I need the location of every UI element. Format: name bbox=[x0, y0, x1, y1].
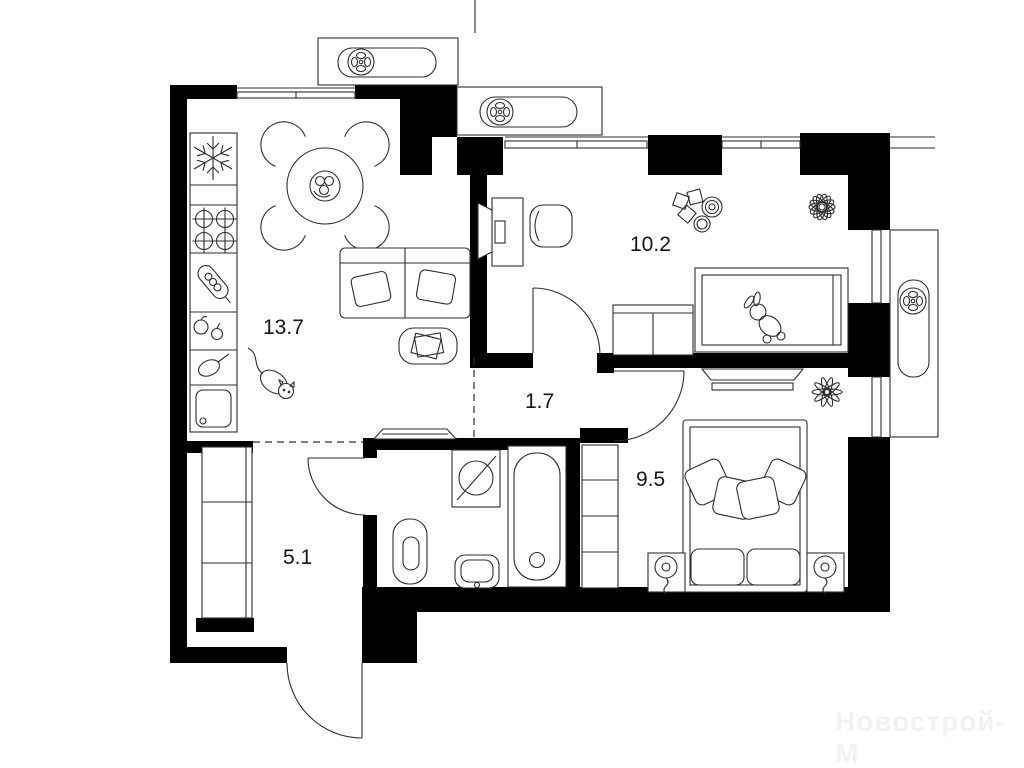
child-bedroom-window-2 bbox=[722, 141, 800, 148]
label-hallway: 1.7 bbox=[525, 390, 554, 413]
coffee-table bbox=[399, 328, 457, 364]
kitchen-sink-icon bbox=[196, 390, 231, 427]
label-entrance-hall: 5.1 bbox=[283, 546, 312, 569]
entrance-hall bbox=[202, 447, 252, 618]
kitchen-window bbox=[237, 88, 355, 98]
double-bed bbox=[683, 420, 808, 592]
bedroom bbox=[582, 369, 844, 594]
sofa bbox=[340, 248, 470, 318]
floor-plan-page: 13.7 10.2 1.7 9.5 5.1 Новострой-М bbox=[0, 0, 1024, 768]
child-bed bbox=[695, 268, 848, 352]
plant-icon bbox=[808, 193, 835, 220]
ac-basket-top-left bbox=[318, 38, 458, 85]
tv-living-room bbox=[374, 429, 456, 439]
washing-machine-icon bbox=[452, 450, 500, 507]
nightstand-left bbox=[648, 553, 685, 594]
child-bedroom-window-1 bbox=[505, 141, 647, 148]
tv-bedroom bbox=[702, 369, 803, 390]
toys-icon bbox=[673, 189, 722, 232]
plant-icon bbox=[812, 377, 842, 408]
dining-table bbox=[251, 112, 398, 259]
cat-icon bbox=[248, 348, 294, 399]
hall-wardrobe bbox=[202, 447, 252, 618]
label-kitchen-living: 13.7 bbox=[263, 316, 304, 339]
child-bedroom-side-window bbox=[872, 230, 881, 303]
nightstand-right bbox=[807, 553, 844, 594]
label-child-bedroom: 10.2 bbox=[630, 233, 671, 256]
windows bbox=[237, 88, 881, 437]
bedroom-wardrobe bbox=[582, 445, 618, 588]
ac-basket-top-right bbox=[457, 87, 602, 135]
desk bbox=[478, 198, 523, 266]
dresser bbox=[613, 305, 693, 355]
bathroom-sink-icon bbox=[455, 555, 499, 588]
entrance-door bbox=[287, 663, 362, 738]
kitchen-counter bbox=[190, 133, 237, 432]
toilet-icon bbox=[393, 519, 427, 584]
desk-chair bbox=[530, 205, 572, 247]
ac-basket-right bbox=[890, 230, 938, 437]
bathtub-icon bbox=[508, 446, 566, 587]
developer-watermark: Новострой-М bbox=[835, 706, 1024, 768]
label-bedroom: 9.5 bbox=[636, 468, 665, 491]
bathroom-door bbox=[308, 458, 365, 515]
bedroom-window bbox=[872, 377, 881, 437]
floor-plan-drawing: 13.7 10.2 1.7 9.5 5.1 bbox=[0, 0, 1024, 768]
bathroom bbox=[393, 446, 566, 588]
child-bedroom-door bbox=[533, 288, 600, 355]
